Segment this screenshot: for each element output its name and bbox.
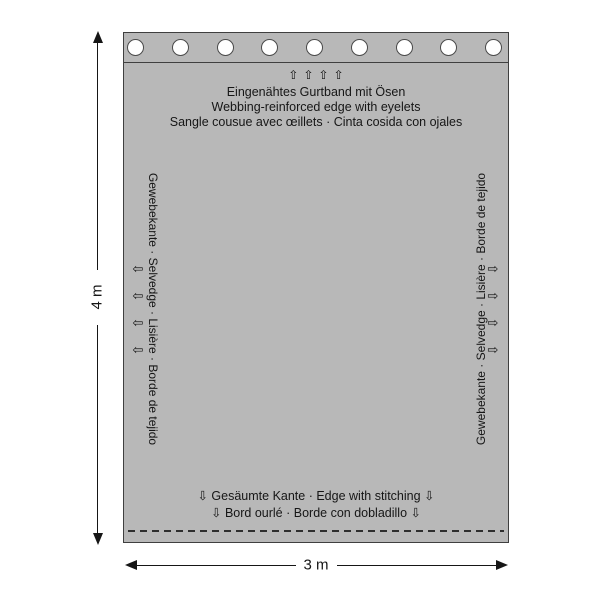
bottom-edge-labels: ⇩ Gesäumte Kante · Edge with stitching ⇩… <box>124 488 508 521</box>
width-dimension-line <box>136 565 296 567</box>
tarpaulin-diagram: ⇧⇧⇧⇧ Eingenähtes Gurtband mit Ösen Webbi… <box>0 0 600 600</box>
up-arrow-icon: ⇧ <box>288 69 298 82</box>
right-arrow-icon: ⇨ <box>488 260 499 277</box>
height-dimension-label: 4 m <box>89 284 106 309</box>
right-arrow-icon: ⇨ <box>488 287 499 304</box>
up-arrows: ⇧⇧⇧⇧ <box>124 69 508 82</box>
arrowhead-right-icon <box>496 560 508 570</box>
eyelet-icon <box>351 39 368 56</box>
eyelet-icon <box>217 39 234 56</box>
bottom-edge-label-de-en: ⇩ Gesäumte Kante · Edge with stitching ⇩ <box>124 488 508 505</box>
eyelet-icon <box>485 39 502 56</box>
eyelet-icon <box>396 39 413 56</box>
right-edge-label: Gewebekante · Selvedge · Lisière · Borde… <box>474 173 488 445</box>
eyelet-icon <box>261 39 278 56</box>
left-arrows: ⇦⇦⇦⇦ <box>133 260 144 358</box>
stitching-dashed-line <box>128 530 504 532</box>
eyelet-icon <box>127 39 144 56</box>
fabric-sheet: ⇧⇧⇧⇧ Eingenähtes Gurtband mit Ösen Webbi… <box>123 32 509 543</box>
right-arrows: ⇨⇨⇨⇨ <box>488 260 499 358</box>
height-dimension-line <box>97 42 99 270</box>
left-arrow-icon: ⇦ <box>133 287 144 304</box>
webbing-strip <box>124 33 508 63</box>
left-arrow-icon: ⇦ <box>133 341 144 358</box>
right-arrow-icon: ⇨ <box>488 341 499 358</box>
left-edge-label: Gewebekante · Selvedge · Lisière · Borde… <box>146 173 160 445</box>
top-edge-label-de: Eingenähtes Gurtband mit Ösen <box>124 85 508 100</box>
up-arrow-icon: ⇧ <box>303 69 313 82</box>
right-arrow-icon: ⇨ <box>488 314 499 331</box>
width-dimension-label: 3 m <box>303 557 328 574</box>
left-arrow-icon: ⇦ <box>133 314 144 331</box>
bottom-edge-label-fr-es: ⇩ Bord ourlé · Borde con dobladillo ⇩ <box>124 505 508 522</box>
left-arrow-icon: ⇦ <box>133 260 144 277</box>
width-dimension-line <box>337 565 497 567</box>
arrowhead-down-icon <box>93 533 103 545</box>
eyelet-icon <box>172 39 189 56</box>
top-edge-label-fr-es: Sangle cousue avec œillets · Cinta cosid… <box>124 115 508 130</box>
top-edge-label-en: Webbing-reinforced edge with eyelets <box>124 100 508 115</box>
eyelet-icon <box>440 39 457 56</box>
up-arrow-icon: ⇧ <box>319 69 329 82</box>
top-edge-labels: ⇧⇧⇧⇧ Eingenähtes Gurtband mit Ösen Webbi… <box>124 69 508 130</box>
up-arrow-icon: ⇧ <box>334 69 344 82</box>
height-dimension-line <box>97 325 99 534</box>
eyelet-icon <box>306 39 323 56</box>
